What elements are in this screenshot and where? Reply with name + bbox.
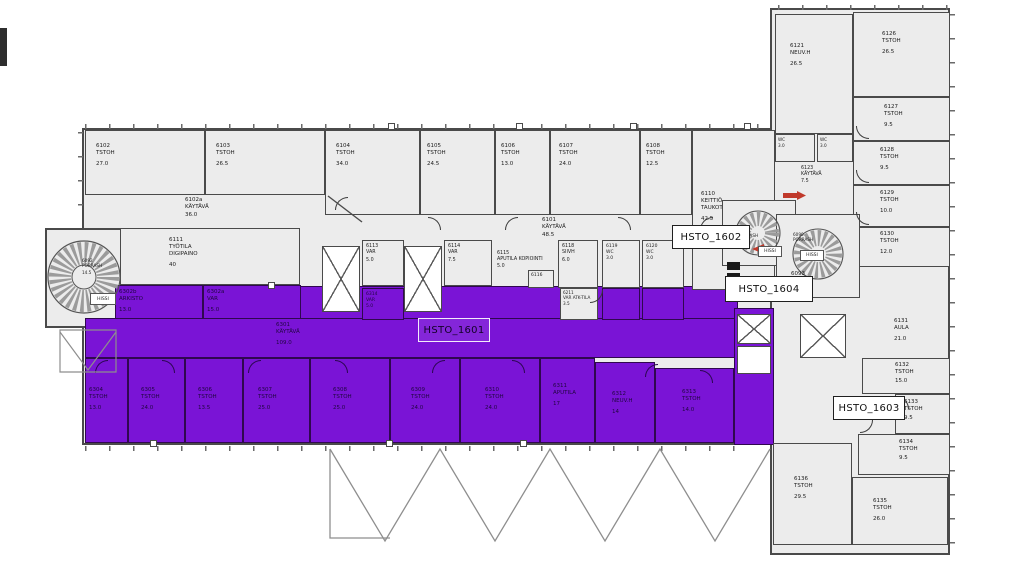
room-6108: 6108TSTOH12.5 <box>640 130 692 215</box>
room-label: 6309TSTOH24.0 <box>411 387 430 412</box>
column-marker <box>630 123 637 130</box>
unit-label-hsto-1603[interactable]: HSTO_1603 <box>833 396 905 420</box>
room-6121: 6121NEUV.H26.5 <box>775 14 853 134</box>
room-label: 6304TSTOH13.0 <box>89 387 108 412</box>
room-label: 6101KÄYTÄVÄ48.5 <box>542 217 566 239</box>
elevator-shaft-icon <box>800 314 846 358</box>
room-label: 6311APUTILA17 <box>553 383 576 408</box>
room-label: 6312NEUV.H14 <box>612 391 633 416</box>
room-6111: 6111TYÖTILA DIGIPAINO40 <box>120 228 300 285</box>
room-label: 6090PORRASH <box>793 232 813 243</box>
elevator-shaft-icon <box>404 246 442 312</box>
room-label: 6102TSTOH27.0 <box>96 143 115 168</box>
room-6134: 6134TSTOH9.5 <box>858 434 950 475</box>
room-6105: 6105TSTOH24.5 <box>420 130 495 215</box>
room-6310: 6310TSTOH24.0 <box>460 358 540 443</box>
window-ticks-northeast <box>778 5 948 10</box>
elevator-shaft-icon <box>737 314 771 344</box>
room-label: 6131AULA21.0 <box>894 318 909 343</box>
room-label: 6211VAR ATK-TILA3.5 <box>563 291 590 306</box>
window-ticks-east <box>950 14 955 550</box>
column-marker <box>520 440 527 447</box>
room-label: 6135TSTOH26.0 <box>873 498 892 523</box>
edge-artifact <box>0 28 7 66</box>
room-6302b: 6302bARKISTO13.0 <box>115 285 203 320</box>
room-label: 6120WC3.0 <box>646 244 657 262</box>
room-6313: 6313TSTOH14.0 <box>655 368 734 443</box>
room-wc-east-1: WC3.0 <box>775 134 815 162</box>
window-ticks-west <box>78 132 83 227</box>
room-label: 6302bARKISTO13.0 <box>119 289 143 314</box>
room-6116: 6116 <box>528 270 554 288</box>
room-label: 6313TSTOH14.0 <box>682 389 701 414</box>
room-6106: 6106TSTOH13.0 <box>495 130 550 215</box>
room-6309: 6309TSTOH24.0 <box>390 358 460 443</box>
room-label: 6306TSTOH13.5 <box>198 387 217 412</box>
room-label: 6105TSTOH24.5 <box>427 143 446 168</box>
shaft-box <box>737 346 771 374</box>
column-marker <box>150 440 157 447</box>
room-6130: 6130TSTOH12.0 <box>853 227 950 267</box>
stair-6092-label-area: 6092PORRASH14.5 <box>82 258 122 292</box>
window-ticks-bottom <box>85 446 735 451</box>
room-label: 6307TSTOH25.0 <box>258 387 277 412</box>
room-label: 6136TSTOH29.5 <box>794 476 813 501</box>
room-label: 6106TSTOH13.0 <box>501 143 520 168</box>
column-marker <box>268 282 275 289</box>
room-6103: 6103TSTOH26.5 <box>205 130 325 195</box>
room-label: 6127TSTOH9.5 <box>884 104 903 129</box>
room-label: 6103TSTOH26.5 <box>216 143 235 168</box>
column-marker <box>744 123 751 130</box>
elevator-hissi-label: HISSI <box>90 293 116 305</box>
room-6102a-corridor: 6102aKÄYTÄVÄ36.0 <box>85 195 310 228</box>
stair-6090-label-area: 6090PORRASH <box>793 232 833 252</box>
room-label: 6305TSTOH24.0 <box>141 387 160 412</box>
room-6302a: 6302aVAR15.0 <box>203 285 301 320</box>
room-label: 6130TSTOH12.0 <box>880 231 899 256</box>
room-label: 6107TSTOH24.0 <box>559 143 578 168</box>
floor-plan: 6302bARKISTO13.0 6302aVAR15.0 6301KÄYTÄV… <box>0 0 1024 576</box>
unit-label-hsto-1601[interactable]: HSTO_1601 <box>418 318 490 342</box>
room-label: 6128TSTOH9.5 <box>880 147 899 172</box>
room-label: 6104TSTOH34.0 <box>336 143 355 168</box>
room-6135: 6135TSTOH26.0 <box>852 477 948 545</box>
window-ticks-top <box>85 124 773 129</box>
room-label: 6302aVAR15.0 <box>207 289 224 314</box>
room-6114: 6114VAR7.5 <box>444 240 492 286</box>
room-label: 6126TSTOH26.5 <box>882 31 901 56</box>
room-6131: 6131AULA21.0 <box>862 308 950 358</box>
room-wc-south-2 <box>642 288 684 320</box>
room-label: 6310TSTOH24.0 <box>485 387 504 412</box>
room-wc-east-2: WC3.0 <box>817 134 853 162</box>
room-6305: 6305TSTOH24.0 <box>128 358 185 443</box>
column-marker <box>386 440 393 447</box>
room-label: 6132TSTOH15.0 <box>895 362 914 385</box>
room-6306: 6306TSTOH13.5 <box>185 358 243 443</box>
room-wc-south-1 <box>602 288 640 320</box>
room-6107: 6107TSTOH24.0 <box>550 130 640 215</box>
room-label: 6308TSTOH25.0 <box>333 387 352 412</box>
room-label: 6118SIIVH6.0 <box>562 244 575 264</box>
room-label: WC3.0 <box>778 137 785 149</box>
room-label: 6123KÄYTÄVÄ7.5 <box>801 166 822 185</box>
room-label: 6114VAR7.5 <box>448 244 460 264</box>
elevator-hissi-label: HISSI <box>758 246 782 257</box>
room-6102: 6102TSTOH27.0 <box>85 130 205 195</box>
unit-label-hsto-1602[interactable]: HSTO_1602 <box>672 225 750 249</box>
room-label: 6102aKÄYTÄVÄ36.0 <box>185 197 209 219</box>
room-6314: 6314VAR5.0 <box>362 288 404 320</box>
elevator-shaft-icon <box>322 246 360 312</box>
room-label: 6113VAR5.0 <box>366 244 378 264</box>
room-label: 6134TSTOH9.5 <box>899 439 918 462</box>
column-marker <box>516 123 523 130</box>
room-6132: 6132TSTOH15.0 <box>862 358 950 394</box>
room-6113: 6113VAR5.0 <box>362 240 404 286</box>
room-label: 6108TSTOH12.5 <box>646 143 665 168</box>
column-marker <box>388 123 395 130</box>
room-label: 6121NEUV.H26.5 <box>790 43 811 68</box>
room-label: WC3.0 <box>820 137 827 149</box>
room-6118: 6118SIIVH6.0 <box>558 240 598 288</box>
unit-label-hsto-1604[interactable]: HSTO_1604 <box>725 276 813 302</box>
room-label: 6115APUTILA KOPIOINTI5.0 <box>497 251 543 270</box>
room-6301-corridor[interactable]: 6301KÄYTÄVÄ109.0 <box>85 318 735 358</box>
room-6119: 6119WC3.0 <box>602 240 640 288</box>
room-label: 6092PORRASH14.5 <box>82 258 102 275</box>
room-6308: 6308TSTOH25.0 <box>310 358 390 443</box>
room-label: 6314VAR5.0 <box>366 292 377 310</box>
room-6136: 6136TSTOH29.5 <box>773 443 852 545</box>
room-6123-corridor: 6123KÄYTÄVÄ7.5 <box>775 162 853 200</box>
room-label: 6111TYÖTILA DIGIPAINO40 <box>169 237 215 269</box>
room-label: 6119WC3.0 <box>606 244 617 262</box>
room-label: 6116 <box>531 273 542 279</box>
room-6126: 6126TSTOH26.5 <box>853 12 950 97</box>
elevator-hissi-label: HISSI <box>800 250 824 261</box>
room-label: 6301KÄYTÄVÄ109.0 <box>276 322 300 347</box>
room-label: 6129TSTOH10.0 <box>880 190 899 215</box>
room-6311: 6311APUTILA17 <box>540 358 595 443</box>
terrace-zigzag <box>330 449 770 541</box>
